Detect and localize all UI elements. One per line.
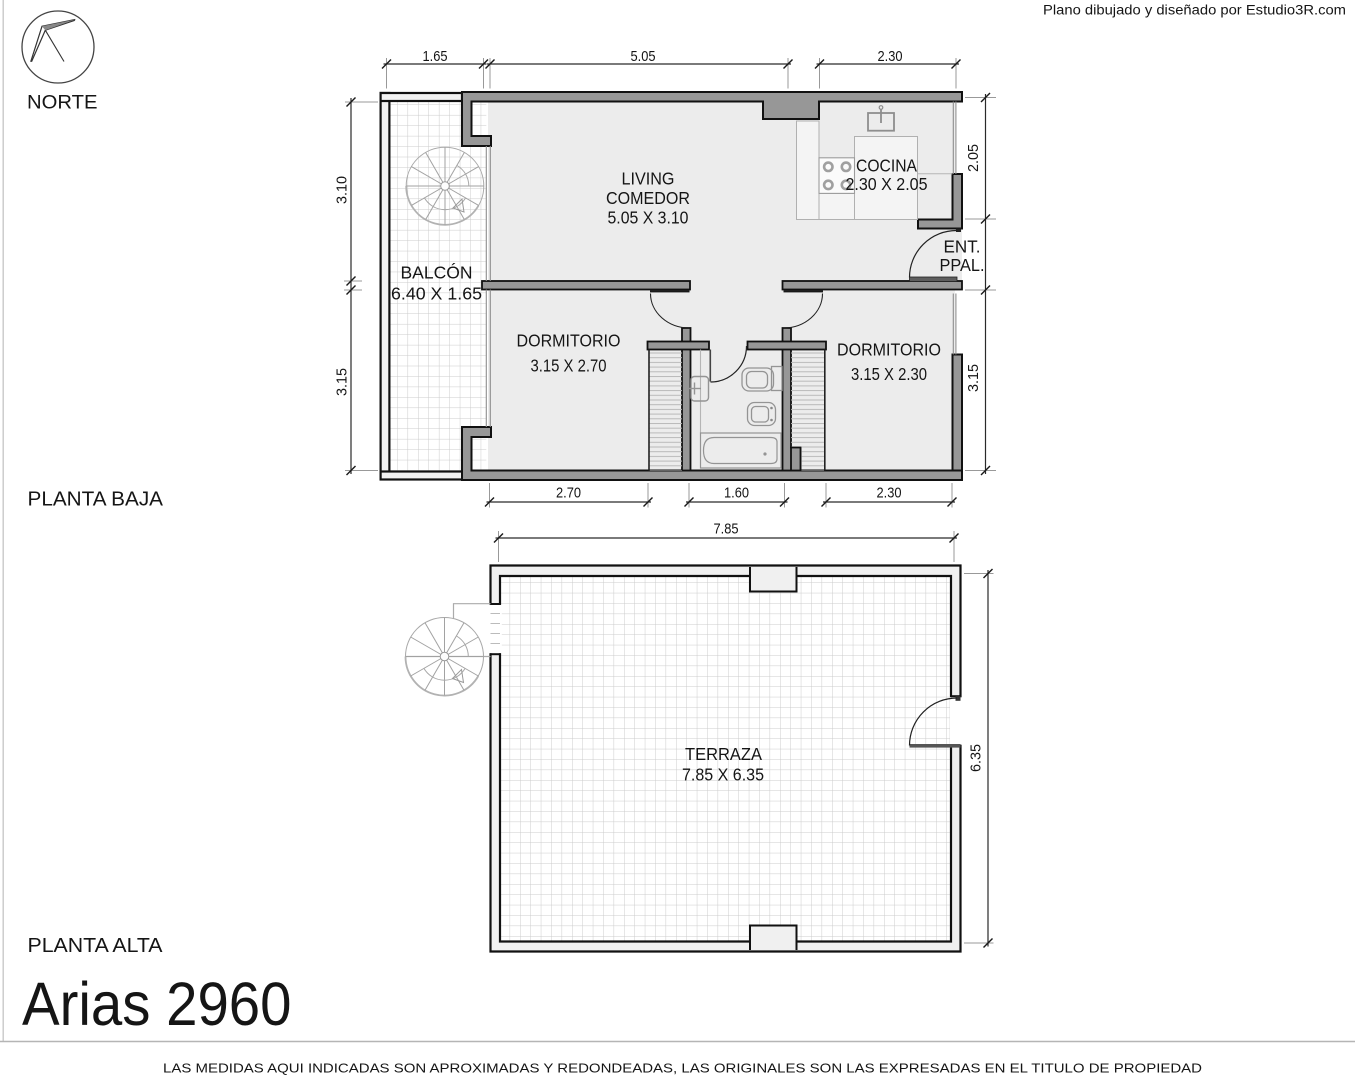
svg-text:7.85: 7.85 <box>714 521 739 538</box>
svg-text:3.15: 3.15 <box>335 368 351 396</box>
svg-text:2.30 X 2.05: 2.30 X 2.05 <box>846 174 928 194</box>
svg-text:5.05: 5.05 <box>631 48 656 65</box>
svg-text:5.05 X 3.10: 5.05 X 3.10 <box>608 208 689 228</box>
svg-text:3.15 X 2.30: 3.15 X 2.30 <box>851 364 927 384</box>
svg-text:BALCÓN: BALCÓN <box>401 262 473 283</box>
svg-text:COCINA: COCINA <box>856 156 917 176</box>
svg-text:Arias 2960: Arias 2960 <box>22 970 292 1038</box>
svg-text:1.60: 1.60 <box>724 485 749 502</box>
svg-text:2.30: 2.30 <box>878 48 903 65</box>
svg-text:DORMITORIO: DORMITORIO <box>837 340 941 360</box>
svg-text:TERRAZA: TERRAZA <box>685 744 762 764</box>
svg-text:COMEDOR: COMEDOR <box>606 188 690 208</box>
svg-text:3.15: 3.15 <box>966 364 982 392</box>
svg-text:7.85 X 6.35: 7.85 X 6.35 <box>682 765 764 785</box>
svg-text:PLANTA ALTA: PLANTA ALTA <box>28 935 164 957</box>
svg-text:DORMITORIO: DORMITORIO <box>517 331 621 351</box>
svg-text:2.30: 2.30 <box>877 485 902 502</box>
svg-text:6.35: 6.35 <box>969 744 985 772</box>
svg-text:3.15 X 2.70: 3.15 X 2.70 <box>531 356 607 376</box>
svg-text:6.40 X 1.65: 6.40 X 1.65 <box>391 284 482 304</box>
svg-text:LIVING: LIVING <box>622 169 675 189</box>
svg-text:ENT.: ENT. <box>944 237 981 257</box>
svg-text:3.10: 3.10 <box>335 176 351 204</box>
svg-text:2.05: 2.05 <box>966 144 982 172</box>
svg-text:Plano dibujado y diseñado por: Plano dibujado y diseñado por Estudio3R.… <box>1043 3 1346 18</box>
svg-text:PLANTA BAJA: PLANTA BAJA <box>28 489 164 511</box>
svg-text:PPAL.: PPAL. <box>940 255 985 275</box>
svg-text:2.70: 2.70 <box>556 485 581 502</box>
svg-text:1.65: 1.65 <box>423 48 448 65</box>
svg-text:NORTE: NORTE <box>27 92 98 114</box>
svg-text:LAS MEDIDAS AQUI INDICADAS SON: LAS MEDIDAS AQUI INDICADAS SON APROXIMAD… <box>163 1061 1202 1076</box>
